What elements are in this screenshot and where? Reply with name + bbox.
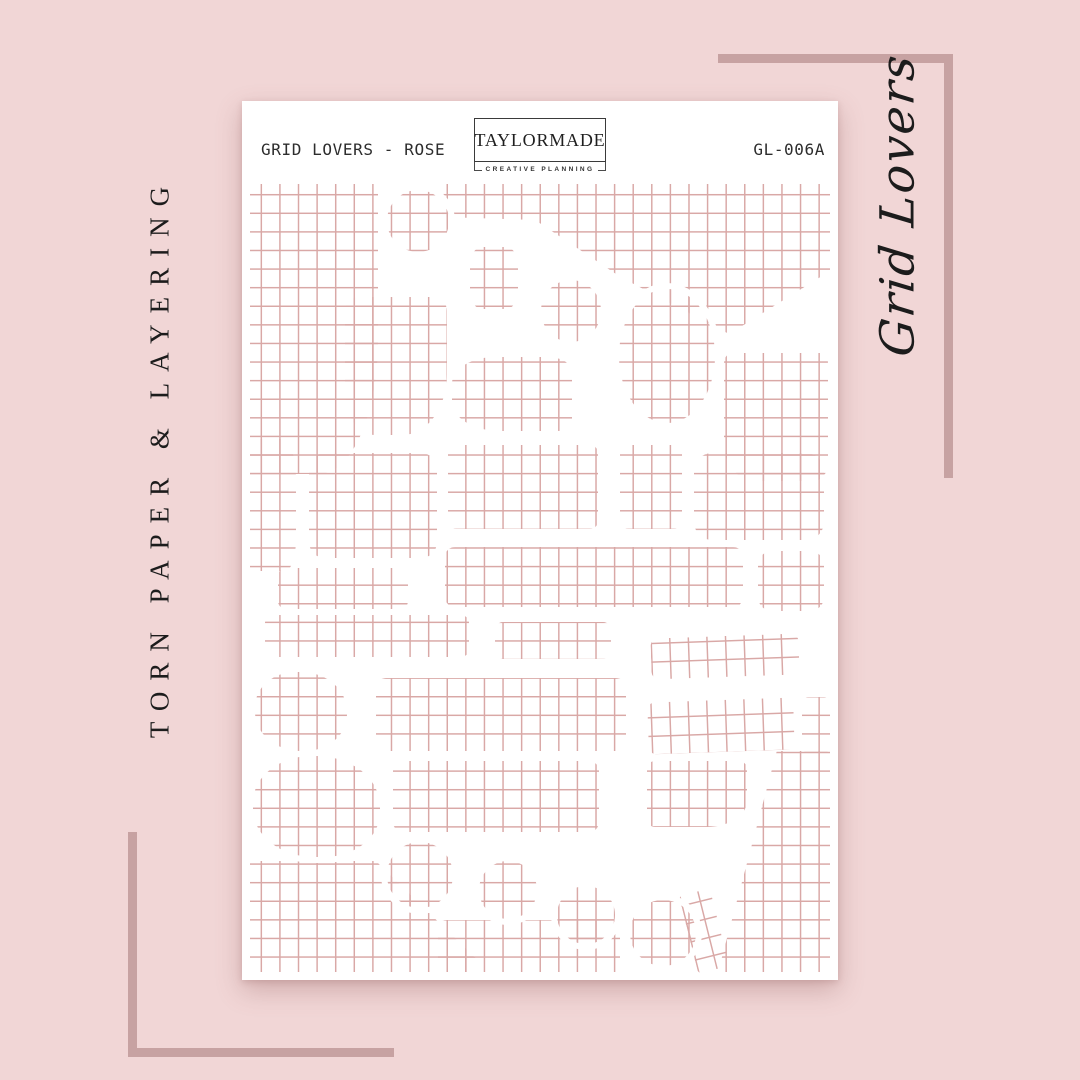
page-background: TORN PAPER & LAYERING Grid Lovers GRID L… xyxy=(0,0,1080,1080)
sticker-piece xyxy=(250,439,296,571)
sticker-sheet: GRID LOVERS - ROSE TAYLORMADE CREATIVE P… xyxy=(242,101,838,980)
left-vertical-label: TORN PAPER & LAYERING xyxy=(145,176,176,738)
sticker-piece xyxy=(387,190,449,252)
sticker-piece xyxy=(620,445,682,529)
sticker-piece xyxy=(345,297,447,435)
sticker-piece xyxy=(470,247,518,309)
sticker-piece xyxy=(541,280,601,342)
sticker-piece xyxy=(495,622,611,659)
sticker-grid-area xyxy=(242,101,838,980)
sticker-piece xyxy=(393,761,599,832)
sticker-piece xyxy=(557,886,615,944)
right-vertical-label: Grid Lovers xyxy=(871,51,926,359)
sticker-piece xyxy=(376,678,626,751)
sticker-piece xyxy=(309,453,437,558)
sticker-piece xyxy=(387,842,453,908)
sticker-piece xyxy=(630,900,696,966)
sticker-piece xyxy=(647,761,747,827)
sticker-piece xyxy=(479,861,537,919)
sticker-piece xyxy=(619,289,715,423)
sticker-piece xyxy=(650,633,799,679)
sticker-piece xyxy=(448,445,598,529)
sticker-piece xyxy=(452,357,572,431)
sticker-piece xyxy=(255,672,347,751)
sticker-piece xyxy=(647,697,795,754)
sticker-piece xyxy=(758,551,824,611)
sticker-piece xyxy=(253,756,380,857)
sticker-piece xyxy=(278,568,408,609)
sticker-piece xyxy=(802,697,830,753)
sticker-piece xyxy=(445,547,743,607)
sticker-piece xyxy=(694,453,824,540)
sticker-piece xyxy=(265,615,469,657)
